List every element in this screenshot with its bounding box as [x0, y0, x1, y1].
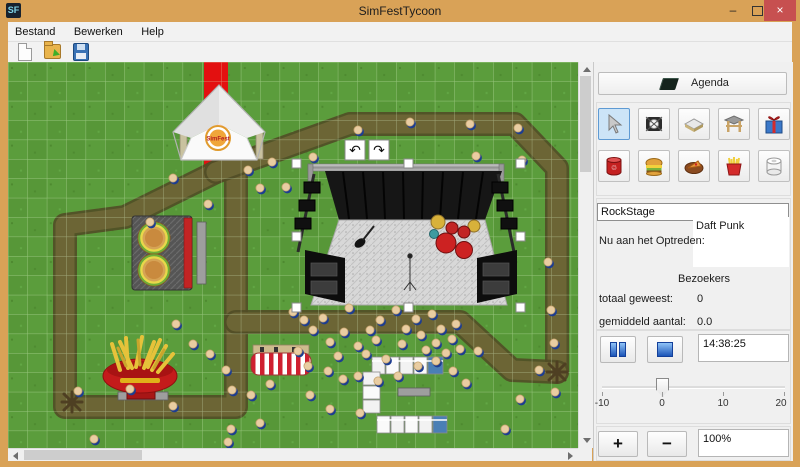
simfest-logo: SimFest — [206, 126, 230, 150]
visitors-header: Bezoekers — [678, 273, 730, 285]
menu-bar: Bestand Bewerken Help — [8, 22, 792, 42]
festival-map-canvas[interactable]: SimFest — [8, 62, 578, 448]
new-file-icon — [18, 43, 32, 61]
truss-frame-icon — [723, 113, 745, 135]
title-bar: SF SimFestTycoon – × — [0, 0, 800, 22]
tool-frame-button[interactable] — [718, 108, 750, 140]
stop-button[interactable] — [647, 336, 683, 363]
scroll-down-icon[interactable] — [583, 438, 591, 443]
speaker-left — [305, 250, 345, 303]
menu-bestand[interactable]: Bestand — [8, 23, 62, 42]
zoom-in-button[interactable]: + — [598, 431, 638, 457]
burger-top-icon — [138, 254, 170, 286]
scrollbar-corner — [578, 448, 592, 461]
total-visitors-label: totaal geweest: — [599, 293, 673, 305]
rotate-right-icon: ↷ — [373, 143, 385, 159]
open-file-button[interactable] — [42, 42, 64, 62]
slider-tick-neg10: -10 — [587, 398, 617, 409]
pause-icon — [619, 342, 626, 357]
cursor-icon — [603, 113, 625, 135]
pizza-plate-icon — [683, 155, 705, 177]
hamburger-icon — [643, 155, 665, 177]
bench[interactable] — [398, 388, 430, 396]
average-visitors-value: 0.0 — [697, 316, 712, 328]
save-button[interactable] — [70, 42, 92, 62]
toilet-roll-icon — [763, 155, 785, 177]
scroll-up-icon[interactable] — [583, 67, 591, 72]
tool-burger-button[interactable] — [638, 150, 670, 182]
tool-fries-button[interactable] — [718, 150, 750, 182]
stage-curtain — [325, 171, 502, 220]
slider-tick-10: 10 — [708, 398, 738, 409]
new-file-button[interactable] — [14, 42, 36, 62]
fries-icon — [723, 155, 745, 177]
tool-stage-button[interactable] — [678, 108, 710, 140]
tool-gift-button[interactable] — [758, 108, 790, 140]
zoom-level-display: 100% — [698, 429, 789, 457]
horizontal-scrollbar[interactable] — [8, 448, 578, 462]
window-border — [0, 461, 800, 467]
clock-display: 14:38:25 — [698, 334, 789, 362]
svg-text:SimFest: SimFest — [206, 137, 229, 143]
spotlight-icon — [643, 113, 665, 135]
slider-tick-0: 0 — [647, 398, 677, 409]
tool-spotlight-button[interactable] — [638, 108, 670, 140]
hamburger-stand[interactable] — [132, 216, 192, 290]
toolbar — [8, 42, 792, 62]
speaker-right — [477, 250, 517, 303]
stop-icon — [657, 342, 673, 357]
vertical-scroll-thumb[interactable] — [580, 76, 591, 172]
close-button[interactable]: × — [764, 0, 796, 21]
average-visitors-label: gemiddeld aantal: — [599, 316, 686, 328]
tool-trash-button[interactable]: ♲ — [598, 150, 630, 182]
horizontal-scroll-thumb[interactable] — [24, 450, 142, 460]
now-performing-box: Daft Punk — [693, 217, 789, 267]
menu-bewerken[interactable]: Bewerken — [67, 23, 130, 42]
slider-tick-20: 20 — [766, 398, 796, 409]
agenda-label: Agenda — [691, 77, 729, 89]
now-performing-value: Daft Punk — [696, 220, 744, 232]
minimize-button[interactable]: – — [722, 0, 744, 21]
menu-help[interactable]: Help — [134, 23, 171, 42]
pause-button[interactable] — [600, 336, 636, 363]
agenda-button[interactable]: Agenda — [598, 72, 787, 95]
zoom-out-button[interactable]: − — [647, 431, 687, 457]
gift-box-icon — [763, 113, 785, 135]
now-performing-label: Nu aan het Optreden: — [599, 235, 705, 247]
rotate-left-icon: ↶ — [349, 143, 361, 159]
speed-slider-track[interactable] — [602, 386, 785, 389]
total-visitors-value: 0 — [697, 293, 703, 305]
vertical-scrollbar[interactable] — [578, 62, 593, 448]
scroll-left-icon[interactable] — [13, 452, 18, 460]
window-title: SimFestTycoon — [0, 0, 800, 22]
agenda-book-icon — [659, 78, 679, 90]
tool-toilet-button[interactable] — [758, 150, 790, 182]
tool-select-button[interactable] — [598, 108, 630, 140]
stage-platform-icon — [683, 113, 705, 135]
side-panel: Agenda ♲ — [593, 62, 793, 461]
save-floppy-icon — [73, 43, 89, 61]
trash-can-icon: ♲ — [603, 155, 625, 177]
tool-pizza-button[interactable] — [678, 150, 710, 182]
rotate-right-button[interactable]: ↷ — [369, 140, 389, 160]
pause-icon — [610, 342, 617, 357]
bench[interactable] — [197, 222, 206, 284]
scroll-right-icon[interactable] — [568, 452, 573, 460]
svg-text:♲: ♲ — [611, 165, 617, 172]
rotate-left-button[interactable]: ↶ — [345, 140, 365, 160]
maximize-icon — [752, 6, 763, 16]
